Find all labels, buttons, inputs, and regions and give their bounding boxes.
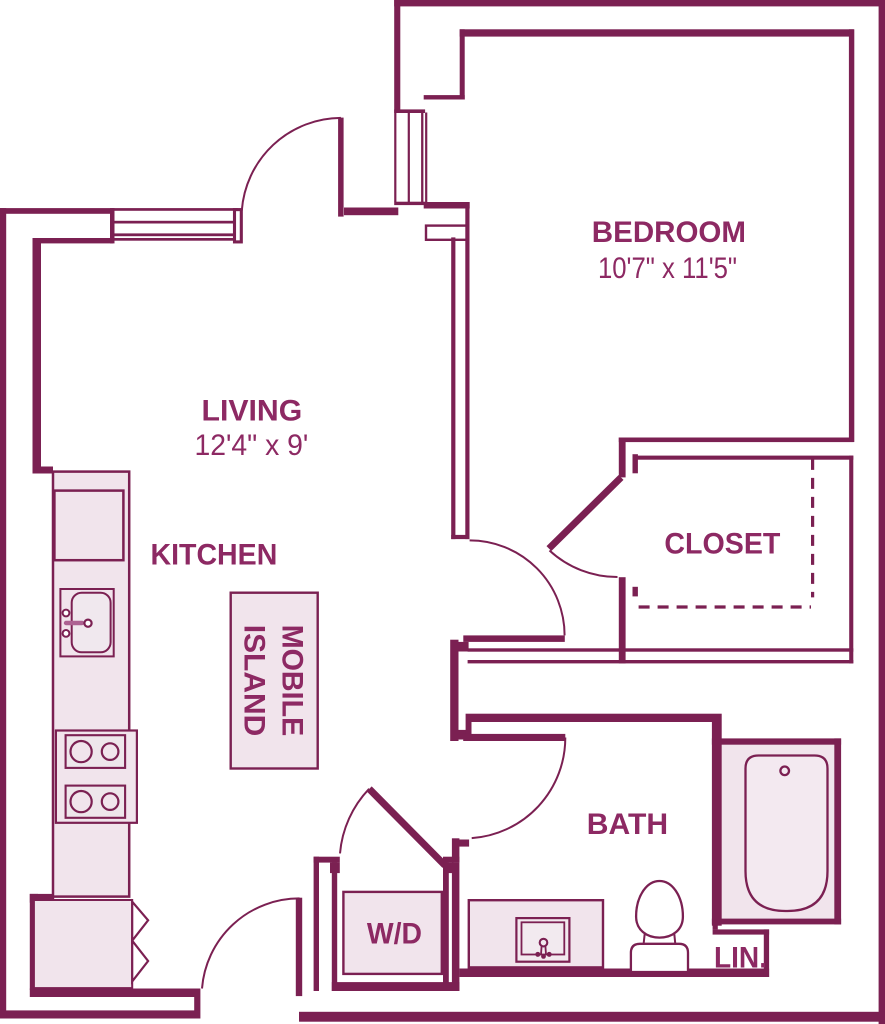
svg-text:KITCHEN: KITCHEN: [151, 538, 278, 571]
svg-text:BATH: BATH: [587, 808, 668, 841]
svg-text:LIVING: LIVING: [202, 395, 303, 428]
svg-text:BEDROOM: BEDROOM: [592, 216, 746, 249]
svg-text:W/D: W/D: [367, 917, 422, 950]
svg-text:10'7" x 11'5": 10'7" x 11'5": [598, 252, 737, 285]
svg-text:LIN.: LIN.: [714, 942, 767, 975]
svg-text:CLOSET: CLOSET: [664, 528, 780, 561]
svg-text:12'4" x 9': 12'4" x 9': [194, 429, 308, 462]
